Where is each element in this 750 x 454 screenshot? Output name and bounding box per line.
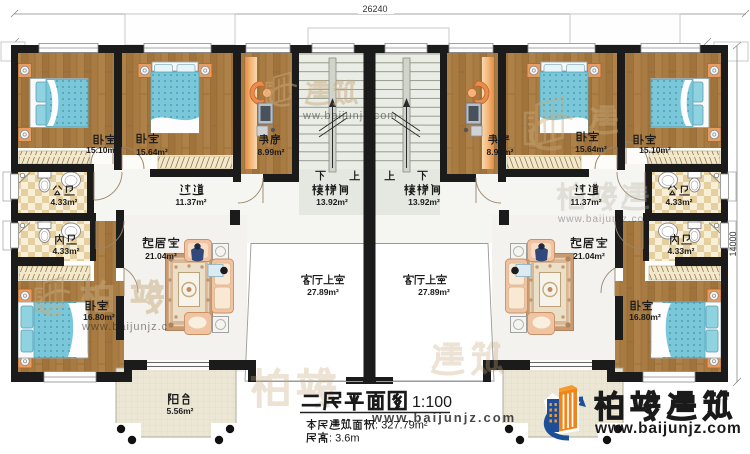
svg-text:15.10m²: 15.10m²	[639, 145, 671, 155]
svg-text:13.92m²: 13.92m²	[316, 197, 348, 207]
svg-text:16.80m²: 16.80m²	[83, 312, 115, 322]
svg-text:: 3.6m: : 3.6m	[329, 433, 360, 445]
svg-text:16.80m²: 16.80m²	[629, 312, 661, 322]
svg-text:: 327.79m²: : 327.79m²	[375, 420, 428, 432]
svg-text:8.99m²: 8.99m²	[487, 147, 514, 157]
svg-text:ww.baijunjz.com: ww.baijunjz.com	[302, 110, 397, 122]
svg-text:www.baijunjz.co: www.baijunjz.co	[557, 214, 644, 225]
svg-text:4.33m²: 4.33m²	[668, 246, 695, 256]
svg-text:8.99m²: 8.99m²	[258, 147, 285, 157]
svg-text:5.56m²: 5.56m²	[167, 406, 194, 416]
svg-text:15.10m²: 15.10m²	[86, 145, 118, 155]
svg-text:13.92m²: 13.92m²	[408, 197, 440, 207]
svg-text:www.baijunjz.com: www.baijunjz.com	[594, 420, 742, 437]
svg-text:11.37m²: 11.37m²	[570, 197, 601, 207]
svg-text:14000: 14000	[728, 231, 738, 256]
svg-text:4.33m²: 4.33m²	[53, 246, 80, 256]
svg-text:4.33m²: 4.33m²	[51, 197, 78, 207]
svg-text:26240: 26240	[362, 4, 387, 14]
svg-text:27.89m²: 27.89m²	[307, 287, 339, 297]
svg-text:15.64m²: 15.64m²	[136, 147, 168, 157]
svg-text:27.89m²: 27.89m²	[418, 287, 450, 297]
svg-text:21.04m²: 21.04m²	[573, 251, 605, 261]
svg-text:www.baijunjz.c: www.baijunjz.c	[81, 321, 168, 333]
svg-text:21.04m²: 21.04m²	[145, 251, 177, 261]
svg-text:4.33m²: 4.33m²	[666, 197, 693, 207]
svg-text:11.37m²: 11.37m²	[175, 197, 206, 207]
svg-text:1:100: 1:100	[412, 394, 452, 411]
svg-text:15.64m²: 15.64m²	[575, 144, 607, 154]
